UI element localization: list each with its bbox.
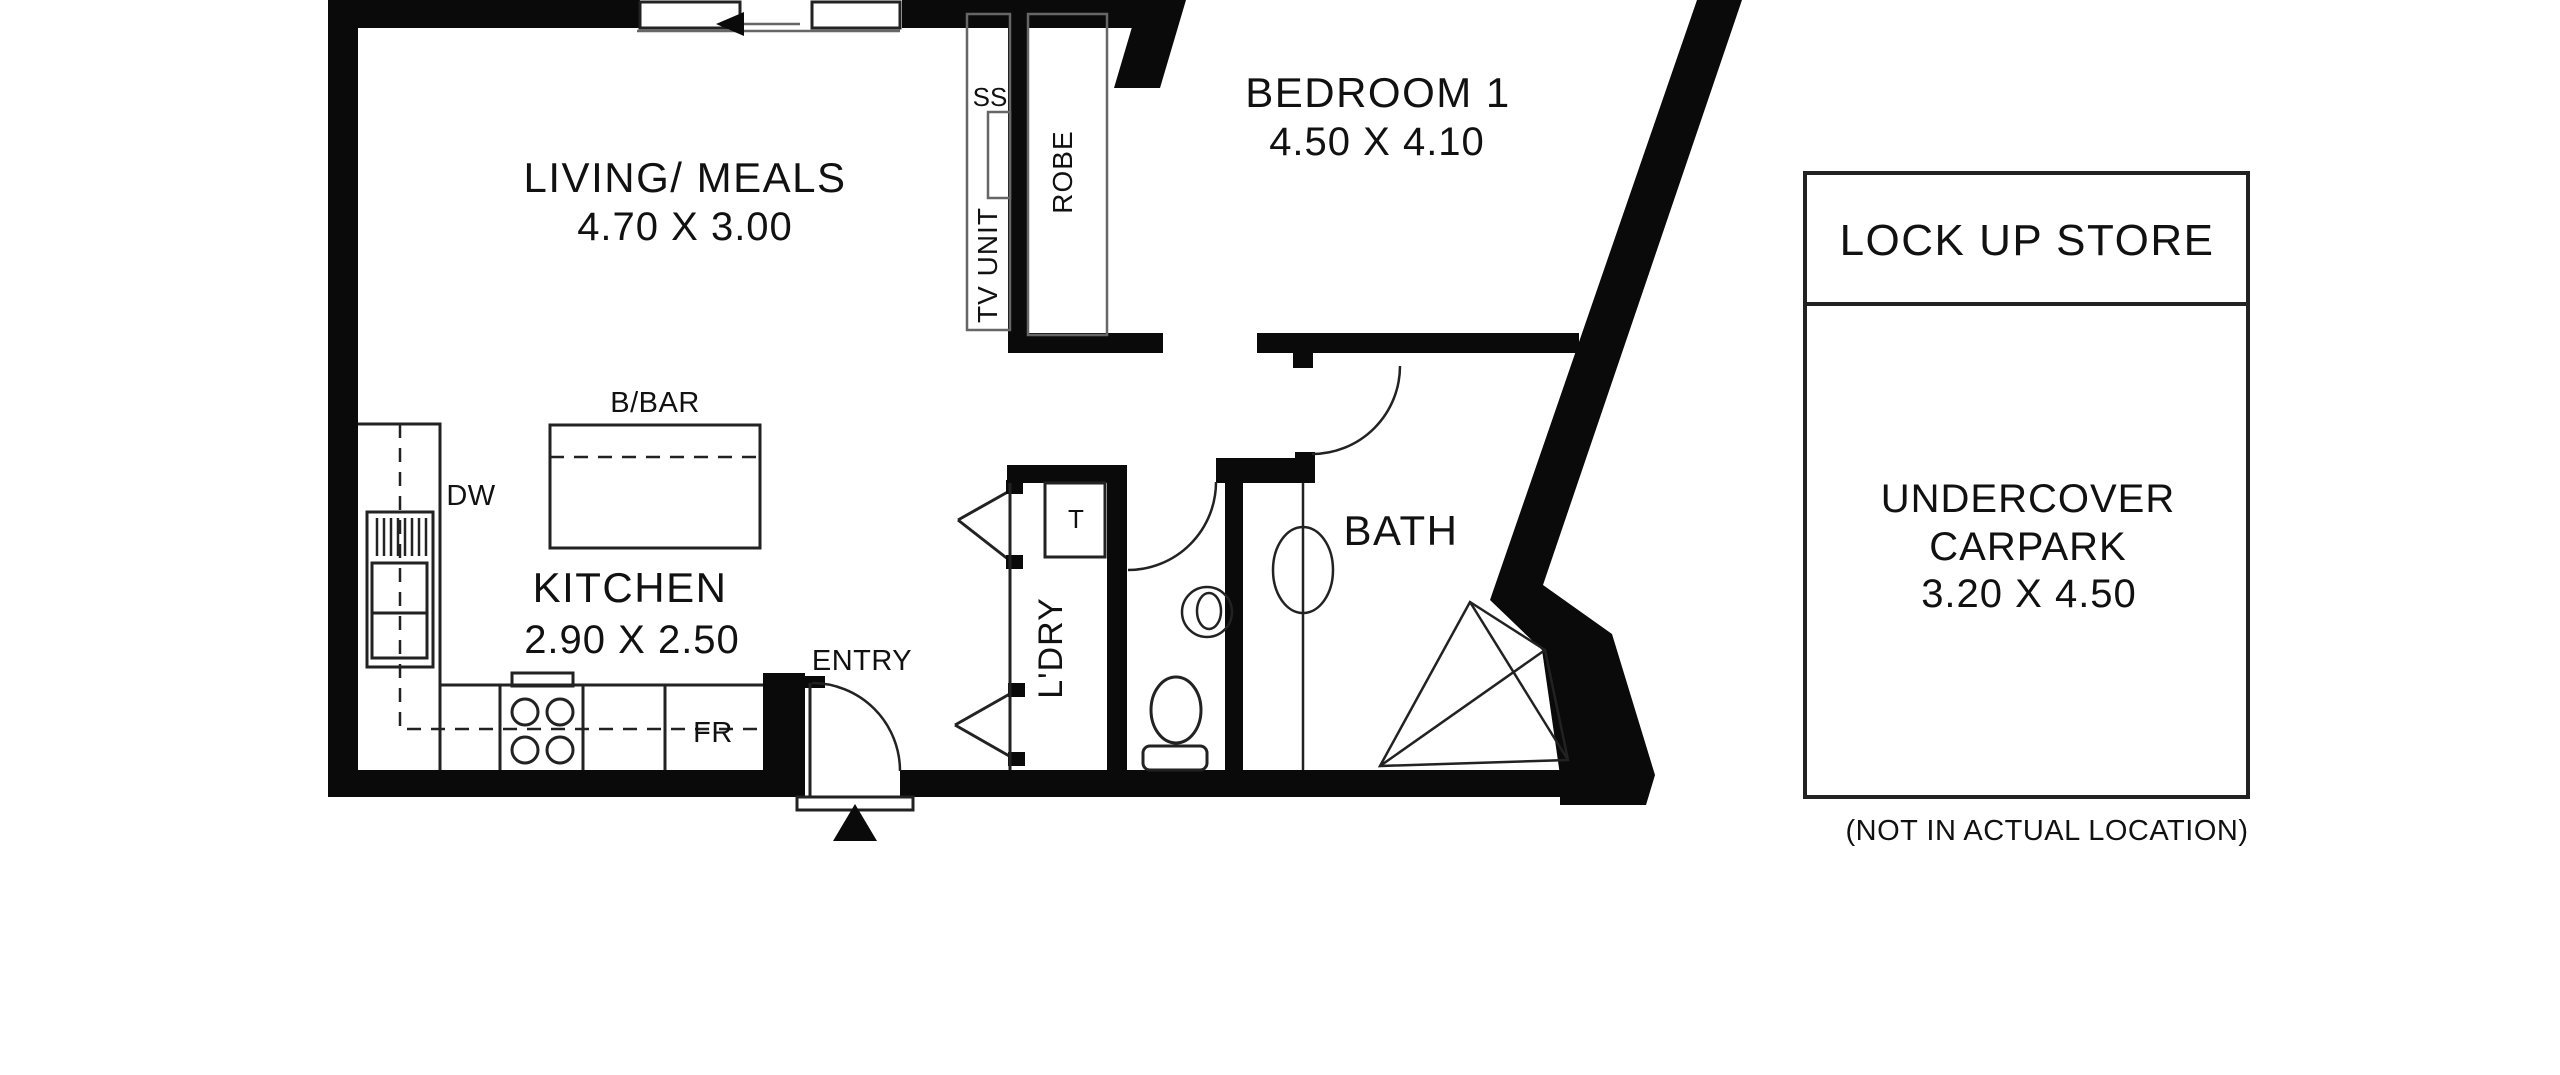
- lock-up-store-label: LOCK UP STORE: [1840, 216, 2215, 265]
- wall-wc-right: [1225, 465, 1243, 770]
- wall-diagonal-right: [1490, 0, 1742, 805]
- wc-basin-bowl: [1197, 593, 1221, 629]
- undercover-label: UNDERCOVER: [1881, 477, 2175, 521]
- wall-bottom-right: [900, 770, 1588, 797]
- sliding-door-panel-2: [812, 2, 900, 28]
- wall-laundry-top: [1007, 465, 1127, 483]
- labels: LIVING/ MEALS 4.70 X 3.00 BEDROOM 1 4.50…: [446, 69, 2248, 847]
- robe-label: ROBE: [1047, 130, 1078, 213]
- entry-door-arc: [812, 683, 900, 771]
- laundry-bifold-doors: [955, 480, 1025, 766]
- bedroom1-dimensions: 4.50 X 4.10: [1269, 120, 1485, 164]
- wall-wc-left: [1107, 483, 1127, 770]
- laundry-label: L'DRY: [1032, 597, 1070, 699]
- wall-bottom-left: [328, 770, 805, 797]
- carpark-label: CARPARK: [1929, 525, 2126, 569]
- entry-door: [797, 683, 913, 841]
- breakfast-bar: [550, 425, 760, 548]
- entry-label: ENTRY: [812, 645, 912, 677]
- living-room-label: LIVING/ MEALS: [524, 154, 847, 201]
- bath-door-arc: [1312, 366, 1400, 454]
- toilet-cistern: [1143, 746, 1207, 770]
- kitchen-dimensions: 2.90 X 2.50: [524, 618, 740, 662]
- dishwasher-label: DW: [446, 480, 495, 512]
- location-note: (NOT IN ACTUAL LOCATION): [1845, 815, 2248, 847]
- entry-jamb: [763, 673, 805, 797]
- floor-plan-canvas: LIVING/ MEALS 4.70 X 3.00 BEDROOM 1 4.50…: [0, 0, 2560, 1075]
- fridge-label: FR: [693, 717, 733, 749]
- trough-label: T: [1068, 504, 1084, 534]
- wall-left: [328, 0, 358, 797]
- carpark-dimensions: 3.20 X 4.50: [1921, 572, 2137, 616]
- bath-label: BATH: [1344, 507, 1459, 554]
- sink-label: SS: [973, 82, 1008, 112]
- kitchen-label: KITCHEN: [533, 564, 728, 611]
- stove-cooktop: [512, 673, 573, 763]
- toilet-bowl: [1151, 677, 1201, 743]
- tv-unit-label: TV UNIT: [972, 207, 1003, 323]
- wall-top-left: [328, 0, 640, 28]
- tv-rect: [988, 112, 1010, 198]
- wc-door-arc: [1128, 482, 1216, 570]
- bedroom1-label: BEDROOM 1: [1245, 69, 1511, 116]
- floor-plan-page: LIVING/ MEALS 4.70 X 3.00 BEDROOM 1 4.50…: [0, 0, 2560, 1075]
- living-room-dimensions: 4.70 X 3.00: [577, 205, 793, 249]
- breakfast-bar-label: B/BAR: [610, 387, 700, 419]
- bath-door-jamb: [1293, 333, 1313, 368]
